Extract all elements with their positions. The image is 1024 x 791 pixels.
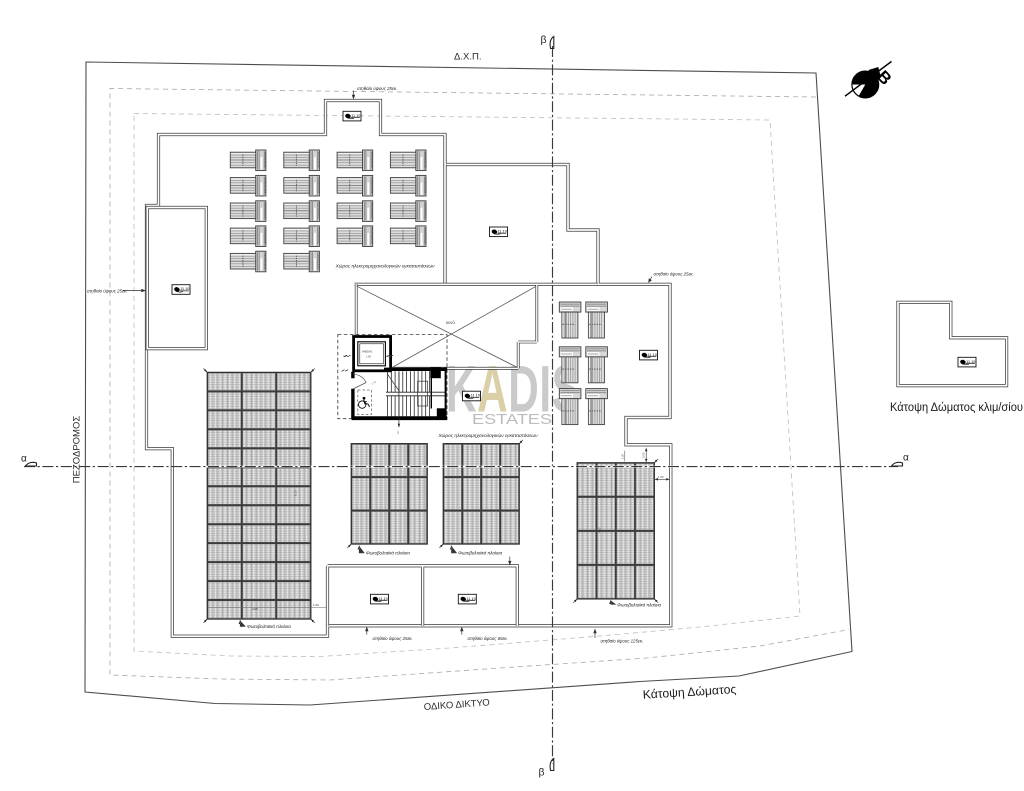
- svg-text:α: α: [21, 454, 27, 465]
- svg-text:ΠΕΖΟΔΡΟΜΟΣ: ΠΕΖΟΔΡΟΜΟΣ: [72, 416, 83, 484]
- svg-text:1.20: 1.20: [313, 603, 319, 607]
- svg-text:α: α: [903, 453, 909, 464]
- svg-text:0.25: 0.25: [387, 355, 392, 358]
- svg-text:στηθαίο ύψους 25εκ.: στηθαίο ύψους 25εκ.: [87, 288, 127, 293]
- svg-text:1.80: 1.80: [366, 355, 372, 359]
- svg-text:στηθαίο ύψους 125εκ.: στηθαίο ύψους 125εκ.: [601, 639, 644, 644]
- svg-text:Φωτοβολταϊκά πλαίσια: Φωτοβολταϊκά πλαίσια: [617, 602, 661, 607]
- svg-text:κενό: κενό: [446, 320, 455, 325]
- svg-text:Χώρος ηλεκτρομηχανολογικών εγκ: Χώρος ηλεκτρομηχανολογικών εγκαταστάσεων: [335, 263, 436, 270]
- svg-text:4.50: 4.50: [598, 527, 602, 533]
- svg-text:Φωτοβολταϊκά πλαίσια: Φωτοβολταϊκά πλαίσια: [366, 551, 410, 556]
- svg-text:4.05: 4.05: [252, 607, 258, 611]
- svg-text:0.50: 0.50: [642, 452, 646, 458]
- svg-text:β: β: [539, 767, 545, 779]
- svg-text:στηθαίο ύψους 25εκ.: στηθαίο ύψους 25εκ.: [357, 86, 397, 91]
- svg-text:ESTATES: ESTATES: [472, 412, 552, 428]
- svg-text:Κάτοψη Δώματος κλιμ/σίου: Κάτοψη Δώματος κλιμ/σίου: [890, 400, 1023, 414]
- svg-text:β: β: [541, 34, 547, 46]
- svg-text:8.10: 8.10: [294, 490, 298, 496]
- svg-text:Δ.Χ.Π.: Δ.Χ.Π.: [454, 52, 481, 63]
- svg-text:στηθαίο ύψους 25εκ.: στηθαίο ύψους 25εκ.: [654, 272, 694, 277]
- svg-text:στηθαίο ύψους 65εκ.: στηθαίο ύψους 65εκ.: [468, 636, 508, 641]
- svg-text:Χώρος ηλεκτρομηχανολογικών εγκ: Χώρος ηλεκτρομηχανολογικών εγκαταστάσεων: [438, 432, 539, 439]
- svg-text:ΑΝΕΛΚ.: ΑΝΕΛΚ.: [362, 350, 373, 354]
- svg-text:1.20: 1.20: [658, 475, 664, 479]
- svg-text:1.20: 1.20: [620, 453, 624, 459]
- svg-text:Φωτοβολταϊκά πλαίσια: Φωτοβολταϊκά πλαίσια: [458, 551, 502, 556]
- svg-text:στηθαίο ύψους 25εκ.: στηθαίο ύψους 25εκ.: [373, 636, 413, 641]
- svg-text:Φωτοβολταϊκά πλαίσια: Φωτοβολταϊκά πλαίσια: [247, 624, 291, 629]
